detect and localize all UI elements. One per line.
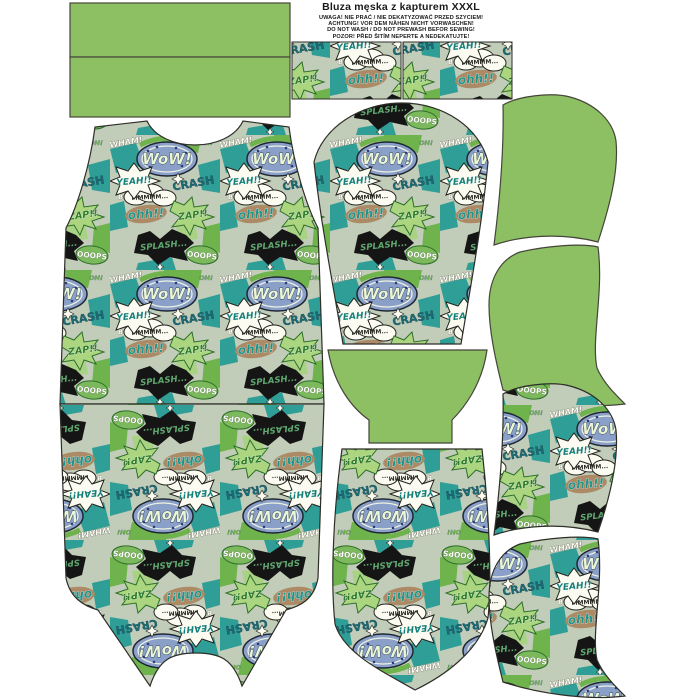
- green-pocket-piece: [328, 350, 487, 443]
- pattern-pieces-canvas: BOOM SPLASH... MMMMM... WoW!: [0, 0, 700, 700]
- green-hood-piece-2: [489, 245, 625, 405]
- green-hood-piece-1: [494, 95, 617, 245]
- sleeve-piece: [314, 103, 488, 344]
- printed-cuff-panel-left: [292, 42, 401, 99]
- green-band-piece-bottom: [70, 57, 290, 117]
- fabric-pattern-panel: BOOM SPLASH... MMMMM... WoW!: [0, 0, 700, 700]
- care-warning-cz: POZOR! PŘED ŠITÍM NEPERTE A NEDEKATUJTE!: [290, 34, 512, 40]
- green-band-piece-top: [70, 3, 290, 57]
- printed-pocket-piece: [333, 449, 490, 690]
- body-back-piece: [60, 404, 324, 686]
- care-label: Bluza męska z kapturem XXXL UWAGA! NIE P…: [290, 2, 512, 42]
- body-front-piece: [60, 121, 324, 404]
- panel-title: Bluza męska z kapturem XXXL: [290, 2, 512, 14]
- printed-hood-piece-2: [489, 537, 625, 697]
- printed-hood-piece-1: [494, 384, 617, 535]
- printed-cuff-panel-right: [403, 42, 512, 99]
